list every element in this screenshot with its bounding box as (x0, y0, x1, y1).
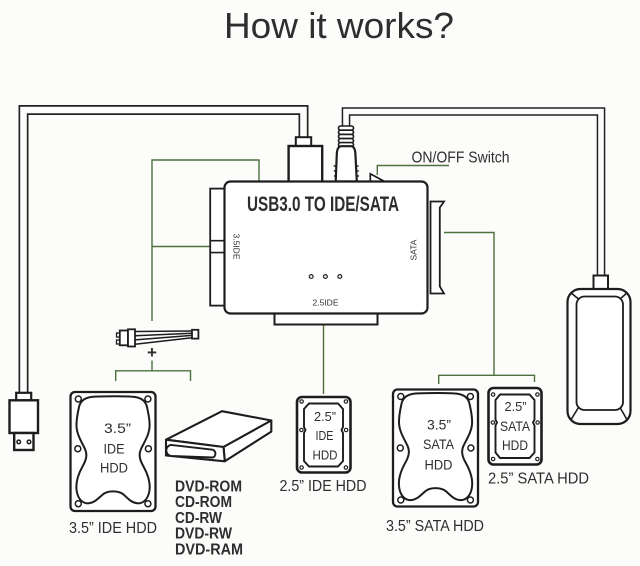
svg-text:IDE: IDE (104, 441, 125, 457)
svg-text:CD-RW: CD-RW (175, 510, 223, 527)
svg-text:2.5” SATA HDD: 2.5” SATA HDD (488, 471, 589, 488)
svg-text:HDD: HDD (100, 460, 128, 476)
svg-text:ON/OFF Switch: ON/OFF Switch (412, 150, 510, 167)
svg-text:3.5IDE: 3.5IDE (232, 234, 242, 260)
svg-text:2.5”: 2.5” (505, 399, 527, 414)
svg-text:3.5”: 3.5” (104, 420, 131, 436)
svg-text:DVD-ROM: DVD-ROM (175, 479, 242, 496)
svg-text:IDE: IDE (316, 428, 334, 443)
svg-text:SATA: SATA (423, 436, 455, 452)
svg-text:HDD: HDD (502, 438, 528, 453)
svg-text:2.5”: 2.5” (314, 409, 336, 424)
svg-text:3.5” IDE HDD: 3.5” IDE HDD (69, 520, 157, 537)
svg-text:SATA: SATA (409, 239, 419, 260)
svg-text:DVD-RW: DVD-RW (175, 526, 233, 543)
svg-text:DVD-RAM: DVD-RAM (175, 542, 243, 559)
svg-text:HDD: HDD (313, 448, 338, 463)
svg-text:USB3.0 TO IDE/SATA: USB3.0 TO IDE/SATA (247, 193, 399, 216)
svg-text:SATA: SATA (500, 419, 530, 434)
svg-text:HDD: HDD (425, 457, 453, 473)
svg-text:2.5” IDE HDD: 2.5” IDE HDD (280, 478, 367, 495)
svg-text:2.5IDE: 2.5IDE (313, 298, 339, 308)
svg-text:3.5”: 3.5” (427, 417, 451, 433)
svg-text:3.5” SATA HDD: 3.5” SATA HDD (386, 518, 484, 535)
svg-text:CD-ROM: CD-ROM (175, 494, 232, 511)
svg-text:+: + (147, 343, 157, 362)
svg-text:How it works?: How it works? (224, 5, 454, 46)
